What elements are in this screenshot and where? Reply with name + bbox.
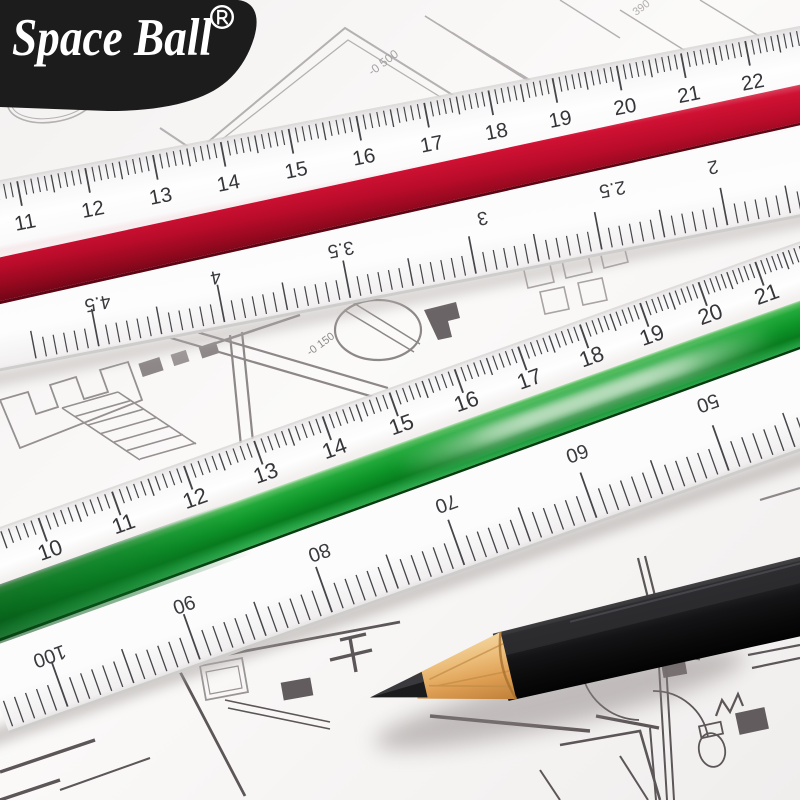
- svg-text:17: 17: [418, 131, 445, 158]
- svg-text:15: 15: [283, 157, 310, 184]
- svg-text:Space Ball: Space Ball: [12, 9, 212, 67]
- svg-text:14: 14: [215, 170, 242, 197]
- svg-text:18: 18: [483, 118, 510, 145]
- svg-text:20: 20: [612, 93, 639, 120]
- svg-text:19: 19: [547, 106, 574, 133]
- svg-text:16: 16: [351, 144, 378, 171]
- svg-text:11: 11: [12, 209, 37, 236]
- svg-text:12: 12: [79, 196, 106, 223]
- svg-text:21: 21: [676, 81, 703, 108]
- svg-text:13: 13: [147, 183, 174, 210]
- svg-text:22: 22: [739, 69, 766, 96]
